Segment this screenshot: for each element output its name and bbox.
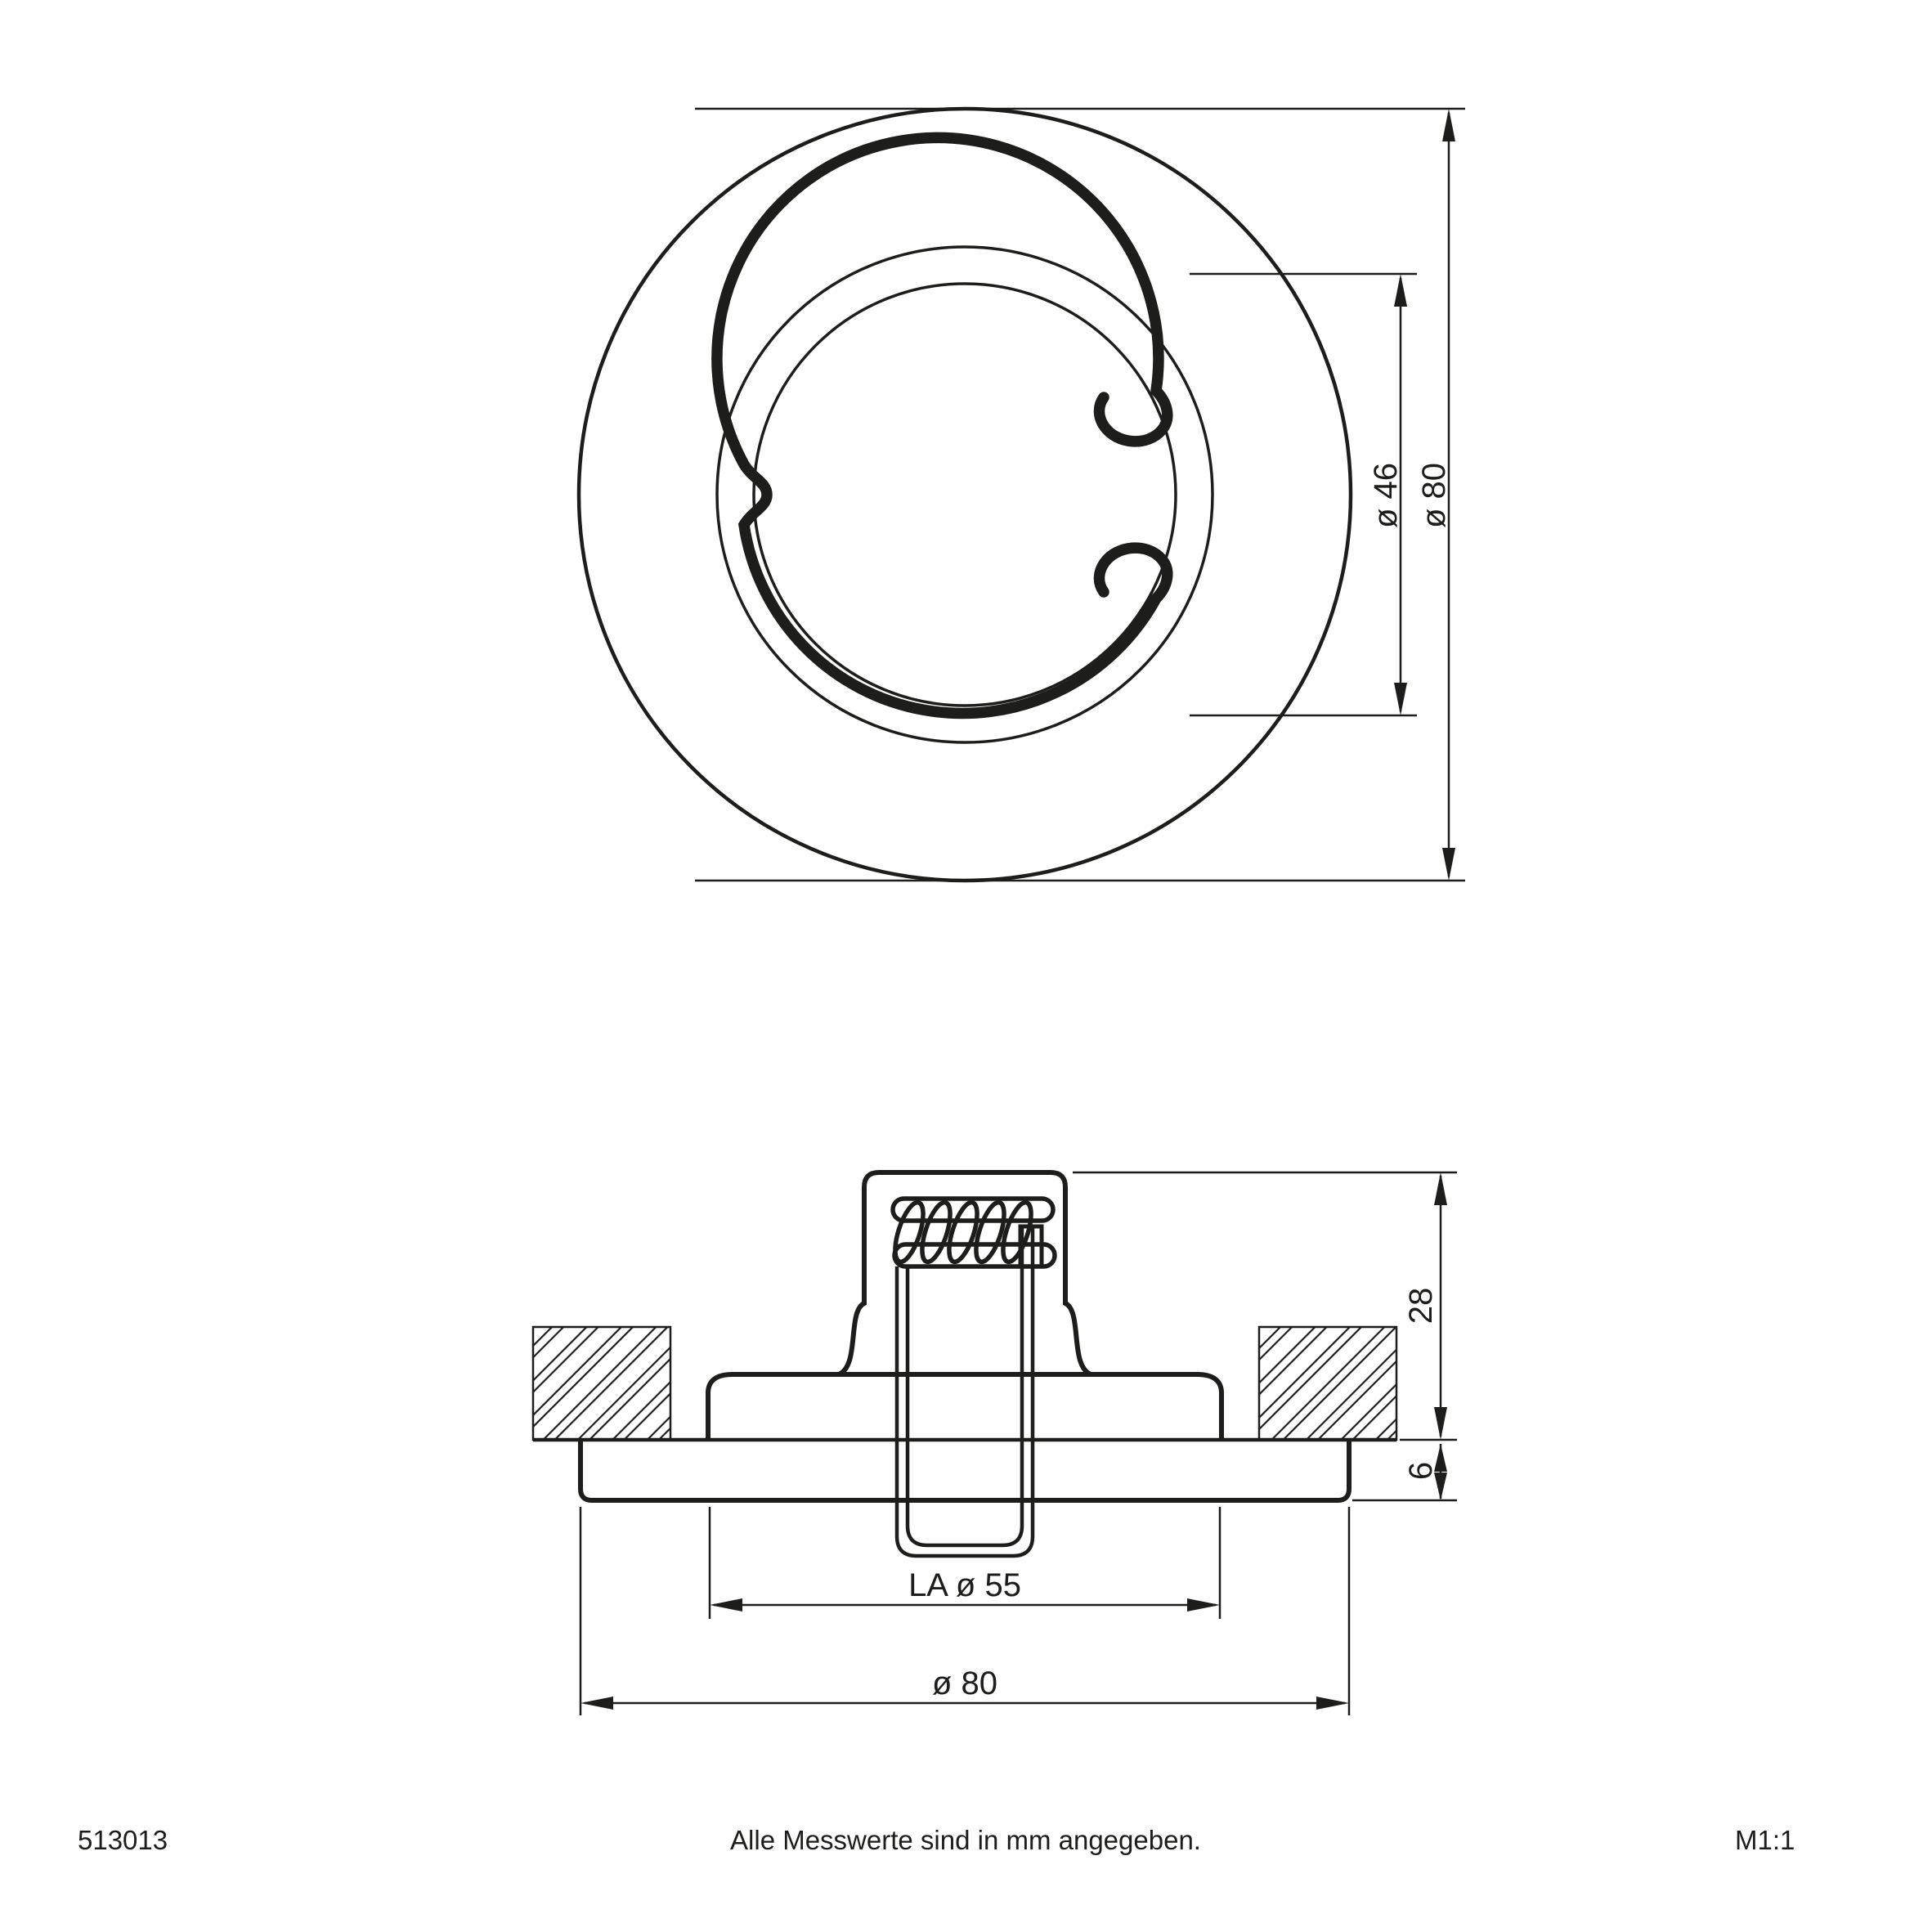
dim28-arrow-down [1434, 1407, 1447, 1440]
dim28-arrow-up [1434, 1172, 1447, 1205]
measurement-note: Alle Messwerte sind in mm angegeben. [730, 1825, 1201, 1855]
dim28-label: 28 [1403, 1288, 1439, 1325]
ceiling-hatch-right [1259, 1327, 1396, 1440]
spring-coil [890, 1199, 1037, 1265]
dimLA-arrow-left [710, 1598, 742, 1611]
dimLA-label: LA ø 55 [908, 1567, 1021, 1603]
footer: 513013 Alle Messwerte sind in mm angegeb… [78, 1825, 1795, 1855]
dim80top-label: ø 80 [1416, 463, 1452, 528]
wire-clip-inner [908, 1228, 1022, 1545]
spring-hook-upper [1099, 391, 1167, 442]
dim80sec-arrow-right [1316, 1697, 1349, 1710]
trim-flange [580, 1440, 1349, 1500]
section-view: 28 6 LA ø 55 ø 80 [533, 1172, 1457, 1715]
dim80sec-label: ø 80 [932, 1665, 997, 1701]
trim-inner-edge-circle [717, 247, 1213, 742]
trim-outer-circle [579, 109, 1351, 881]
dim80sec-arrow-left [580, 1697, 613, 1710]
dim46-arrow-down [1394, 683, 1407, 715]
wire-clip-outer [897, 1228, 1033, 1556]
lamp-opening-circle [754, 284, 1176, 706]
technical-drawing: ø 46 ø 80 [0, 0, 1932, 1932]
dim6-label: 6 [1403, 1462, 1439, 1480]
fixture-body [708, 1374, 1222, 1440]
dim80top-arrow-down [1442, 848, 1455, 881]
dimLA-arrow-right [1187, 1598, 1220, 1611]
drawing-page: ø 46 ø 80 [0, 0, 1932, 1932]
dim46-label: ø 46 [1368, 463, 1404, 528]
spring-hook-lower [1099, 548, 1167, 598]
scale-label: M1:1 [1735, 1825, 1795, 1855]
ceiling-hatch-left [533, 1327, 670, 1440]
dim80top-arrow-up [1442, 109, 1455, 141]
top-view: ø 46 ø 80 [579, 109, 1465, 881]
dim46-arrow-up [1394, 274, 1407, 307]
spring-retaining-ring [717, 137, 1159, 713]
article-number: 513013 [78, 1825, 168, 1855]
